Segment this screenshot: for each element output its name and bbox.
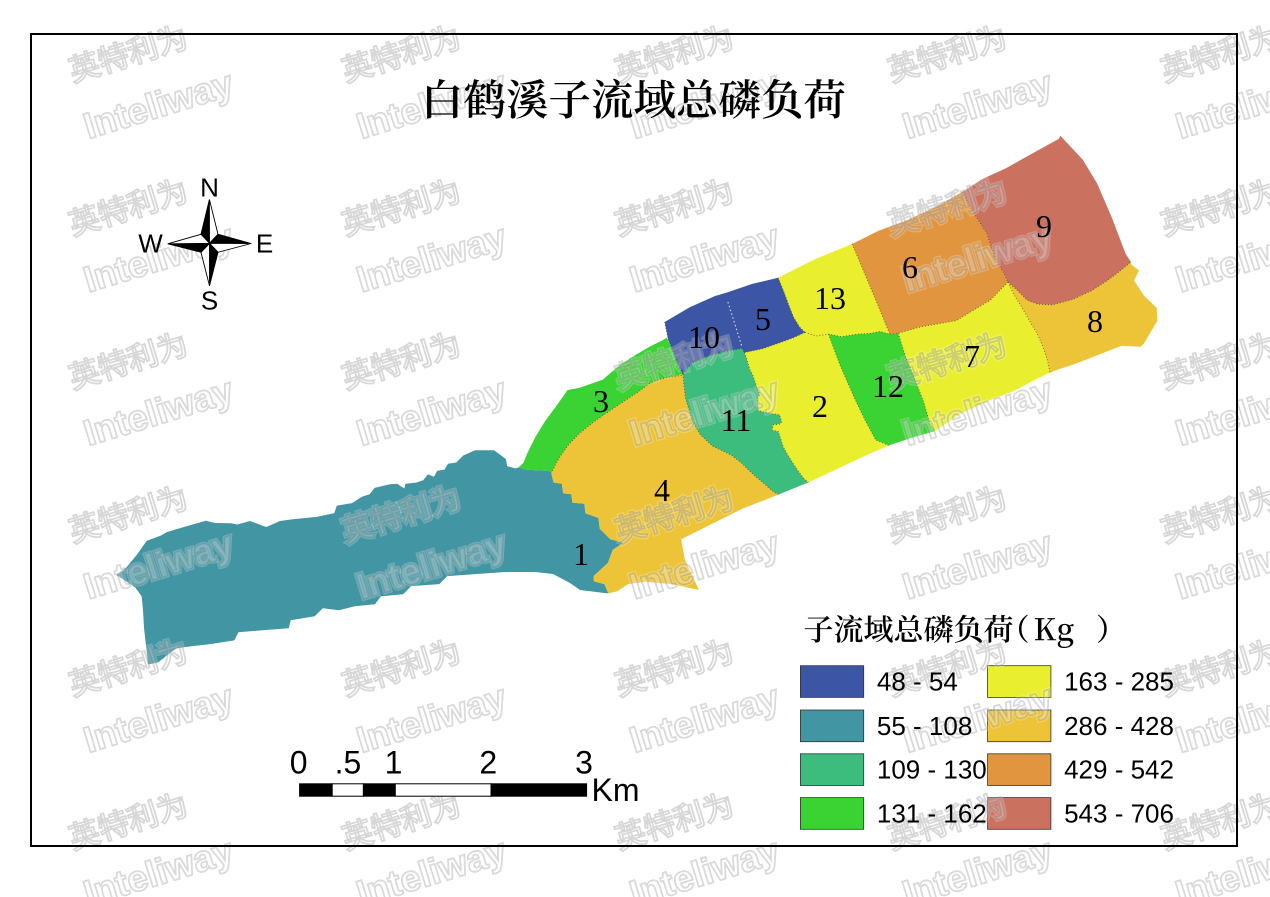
svg-text:286 - 428: 286 - 428 xyxy=(1064,711,1174,741)
svg-text:9: 9 xyxy=(1036,208,1052,244)
svg-text:Km: Km xyxy=(592,772,640,808)
svg-text:5: 5 xyxy=(755,301,771,337)
svg-text:N: N xyxy=(200,173,219,203)
svg-text:1: 1 xyxy=(573,536,589,572)
svg-text:S: S xyxy=(201,286,218,316)
svg-text:8: 8 xyxy=(1087,303,1103,339)
svg-text:4: 4 xyxy=(654,472,670,508)
svg-text:543 - 706: 543 - 706 xyxy=(1064,799,1174,829)
svg-text:55 - 108: 55 - 108 xyxy=(877,711,972,741)
svg-text:163 - 285: 163 - 285 xyxy=(1064,667,1174,697)
svg-text:3: 3 xyxy=(593,383,609,419)
svg-text:131 - 162: 131 - 162 xyxy=(877,799,987,829)
svg-text:109 - 130: 109 - 130 xyxy=(877,755,987,785)
svg-text:429 - 542: 429 - 542 xyxy=(1064,755,1174,785)
svg-text:2: 2 xyxy=(812,388,828,424)
svg-text:6: 6 xyxy=(902,249,918,285)
svg-text:7: 7 xyxy=(964,338,980,374)
svg-text:2: 2 xyxy=(479,745,497,781)
svg-text:3: 3 xyxy=(575,745,593,781)
svg-text:48 - 54: 48 - 54 xyxy=(877,667,958,697)
svg-text:E: E xyxy=(256,229,273,259)
svg-text:1: 1 xyxy=(385,745,403,781)
svg-text:.5: .5 xyxy=(335,745,362,781)
svg-text:13: 13 xyxy=(814,280,846,316)
svg-text:11: 11 xyxy=(721,402,752,438)
svg-text:12: 12 xyxy=(872,368,904,404)
svg-text:10: 10 xyxy=(688,319,720,355)
svg-text:0: 0 xyxy=(290,745,308,781)
svg-text:W: W xyxy=(138,229,163,259)
